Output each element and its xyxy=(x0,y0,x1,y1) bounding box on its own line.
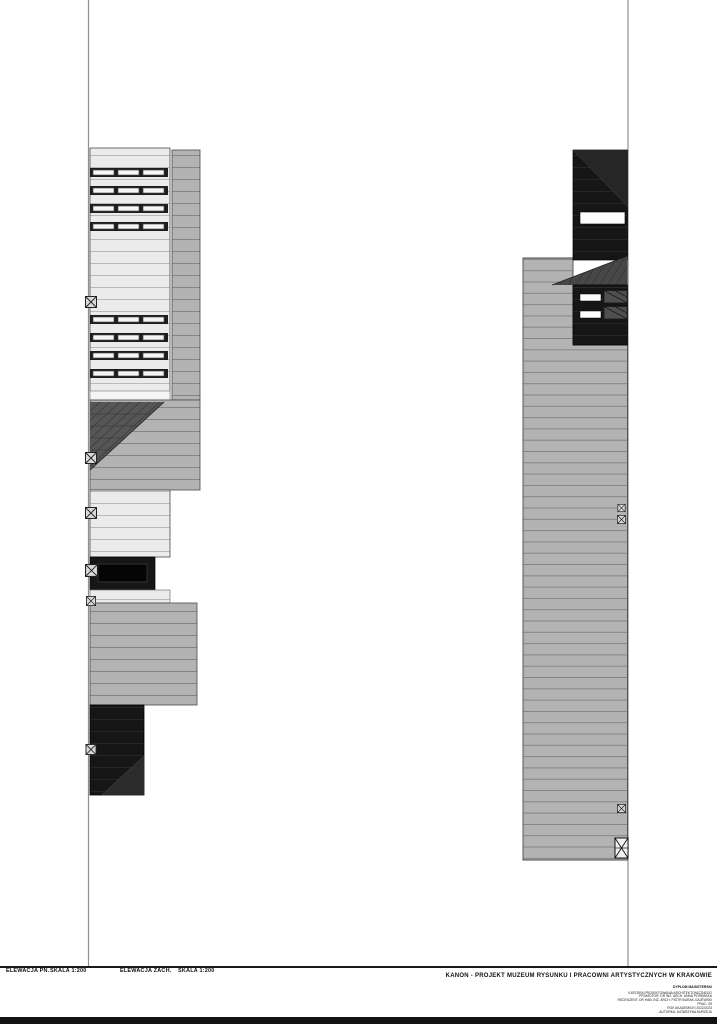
drawing-sheet: ELEWACJA PN. SKALA 1:200 ELEWACJA ZACH. … xyxy=(0,0,717,1024)
crossed-box-marker-icon xyxy=(617,804,625,812)
sheet-bottom-bar xyxy=(0,1017,717,1024)
credit-line: AUTORKA: KATARZYNA KURZEJA xyxy=(292,1011,712,1015)
view-scale-north: SKALA 1:200 xyxy=(50,968,87,974)
crossed-box-marker-icon xyxy=(86,596,95,605)
north-lower-gray-block xyxy=(90,603,197,705)
north-black-section xyxy=(90,557,155,590)
crossed-box-marker-icon xyxy=(86,297,97,308)
crossed-box-marker-icon xyxy=(618,504,625,511)
crossed-box-marker-tall-icon xyxy=(615,838,628,858)
elevation-west xyxy=(523,150,636,860)
elevations-drawing xyxy=(0,0,717,1024)
crossed-box-marker-icon xyxy=(86,508,97,519)
crossed-box-marker-icon xyxy=(86,453,97,464)
north-light-band xyxy=(90,590,170,603)
credits: KATEDRA PROJEKTOWANIA ARCHITEKTONICZNEGO… xyxy=(292,992,712,1015)
crossed-box-marker-icon xyxy=(86,744,96,754)
north-upper-facade xyxy=(90,148,170,400)
north-light-strip xyxy=(90,391,170,400)
west-window-slot xyxy=(580,294,601,301)
west-tower-window-slot xyxy=(580,212,625,224)
elevation-north xyxy=(26,148,200,795)
north-lower-facade xyxy=(90,490,170,557)
view-scale-west: SKALA 1:200 xyxy=(178,968,215,974)
west-black-tower xyxy=(573,150,628,260)
diploma-type: DYPLOM MAGISTERSKI xyxy=(292,985,712,989)
crossed-box-marker-icon xyxy=(617,515,625,523)
view-label-west: ELEWACJA ZACH. xyxy=(120,968,172,974)
west-window-slot xyxy=(580,311,601,318)
project-title: KANON - PROJEKT MUZEUM RYSUNKU I PRACOWN… xyxy=(292,973,712,979)
crossed-box-marker-icon xyxy=(86,565,98,577)
west-black-window-block xyxy=(573,285,628,345)
view-label-north: ELEWACJA PN. xyxy=(6,968,49,974)
north-bottom-black-block xyxy=(90,705,144,795)
west-gray-shaft xyxy=(523,258,628,860)
north-side-column xyxy=(172,150,200,400)
north-dark-window-slot xyxy=(98,564,147,582)
footer-separator-line xyxy=(0,966,717,968)
title-block: KANON - PROJEKT MUZEUM RYSUNKU I PRACOWN… xyxy=(292,973,712,1015)
